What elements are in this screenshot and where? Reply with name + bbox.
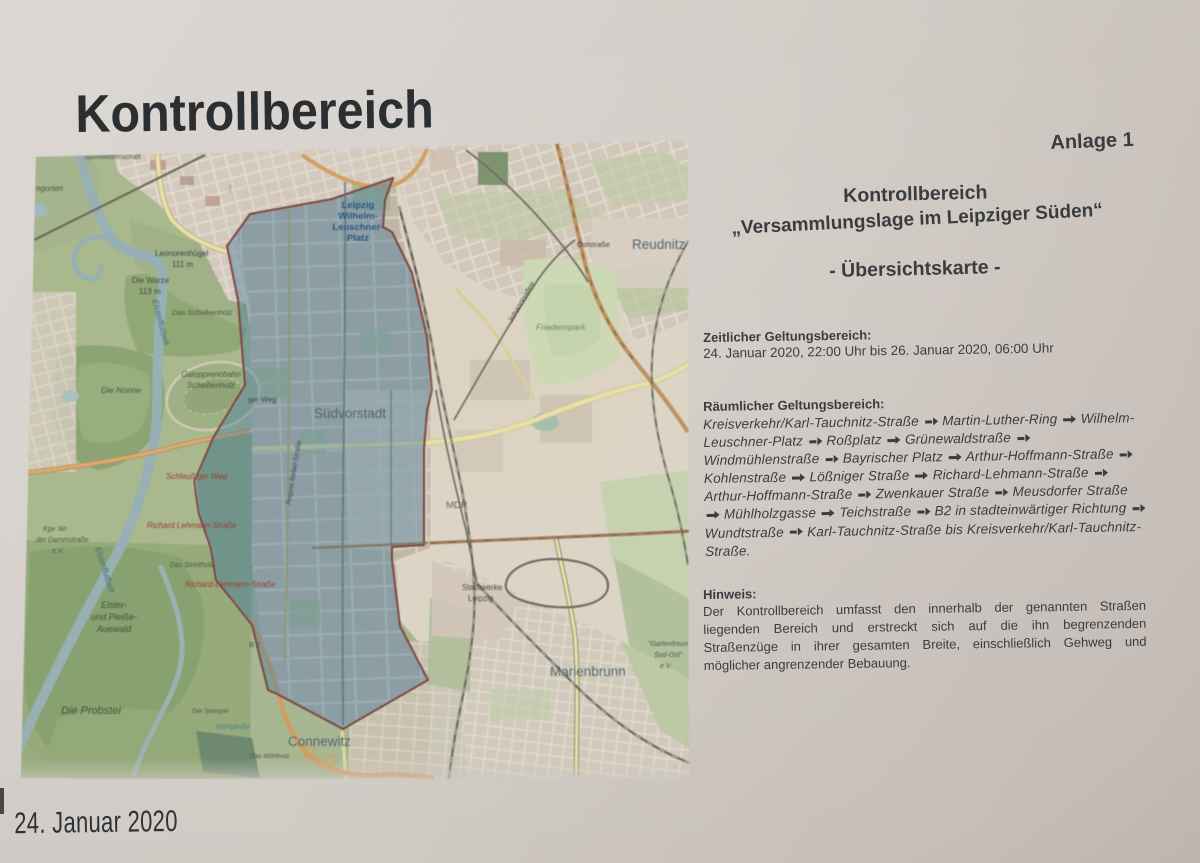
svg-text:Leipzig: Leipzig (342, 200, 375, 211)
svg-text:Sud-Ost": Sud-Ost" (654, 652, 683, 659)
svg-text:Die Probstei: Die Probstei (61, 705, 121, 717)
svg-text:ngorten: ngorten (36, 184, 64, 193)
svg-text:111 m: 111 m (172, 260, 193, 269)
svg-text:Elster-: Elster- (101, 600, 127, 610)
svg-text:Marienbrunn: Marienbrunn (550, 664, 626, 679)
svg-text:Das Scheibenholz: Das Scheibenholz (172, 308, 233, 317)
svg-text:Wilhelm-: Wilhelm- (338, 211, 378, 222)
svg-text:Leonorenhügel: Leonorenhügel (155, 249, 209, 258)
svg-text:e.V.: e.V. (52, 548, 64, 555)
svg-text:Stadtwerke: Stadtwerke (462, 583, 503, 592)
svg-text:und Pleiße-: und Pleiße- (91, 612, 137, 622)
svg-text:Auewald: Auewald (96, 624, 133, 634)
svg-text:Das Streitholz: Das Streitholz (170, 562, 214, 569)
svg-text:Der Stempel: Der Stempel (192, 708, 229, 715)
svg-text:Sportwissenschaft: Sportwissenschaft (84, 154, 141, 161)
svg-text:Galopprennbahn: Galopprennbahn (181, 370, 241, 379)
svg-text:Die Warze: Die Warze (132, 276, 170, 285)
svg-text:"Gartenfreun: "Gartenfreun (648, 641, 688, 648)
svg-text:Mühlpleiße: Mühlpleiße (216, 724, 250, 731)
svg-text:Richard Lehmann Straße: Richard Lehmann Straße (147, 521, 237, 530)
svg-text:Schleußiger Weg: Schleußiger Weg (166, 472, 228, 481)
svg-text:Leipzig: Leipzig (468, 594, 493, 603)
svg-text:e.V.: e.V. (660, 663, 672, 670)
svg-text:Südvorstadt: Südvorstadt (314, 406, 386, 421)
svg-text:Kgv 'An: Kgv 'An (43, 526, 67, 533)
svg-text:Die Nonne: Die Nonne (101, 385, 141, 395)
svg-text:Leuschner-: Leuschner- (332, 222, 383, 233)
svg-text:Oststraße: Oststraße (577, 240, 610, 249)
svg-text:Platz: Platz (347, 233, 369, 244)
svg-text:Richard-Lehmann-Straße: Richard-Lehmann-Straße (185, 580, 276, 589)
svg-text:Reudnitz: Reudnitz (632, 237, 686, 252)
svg-text:Das Mühlholz: Das Mühlholz (250, 753, 290, 760)
svg-text:ger Weg: ger Weg (248, 395, 276, 404)
svg-text:Scheibenholz: Scheibenholz (187, 381, 235, 390)
svg-text:B 2: B 2 (249, 640, 260, 649)
svg-text:Connewitz: Connewitz (288, 734, 351, 749)
svg-text:der Dammstraße: der Dammstraße (36, 537, 89, 544)
svg-text:Friedenspark: Friedenspark (536, 322, 586, 332)
svg-text:MDR: MDR (446, 500, 468, 511)
svg-text:113 m: 113 m (139, 287, 161, 296)
